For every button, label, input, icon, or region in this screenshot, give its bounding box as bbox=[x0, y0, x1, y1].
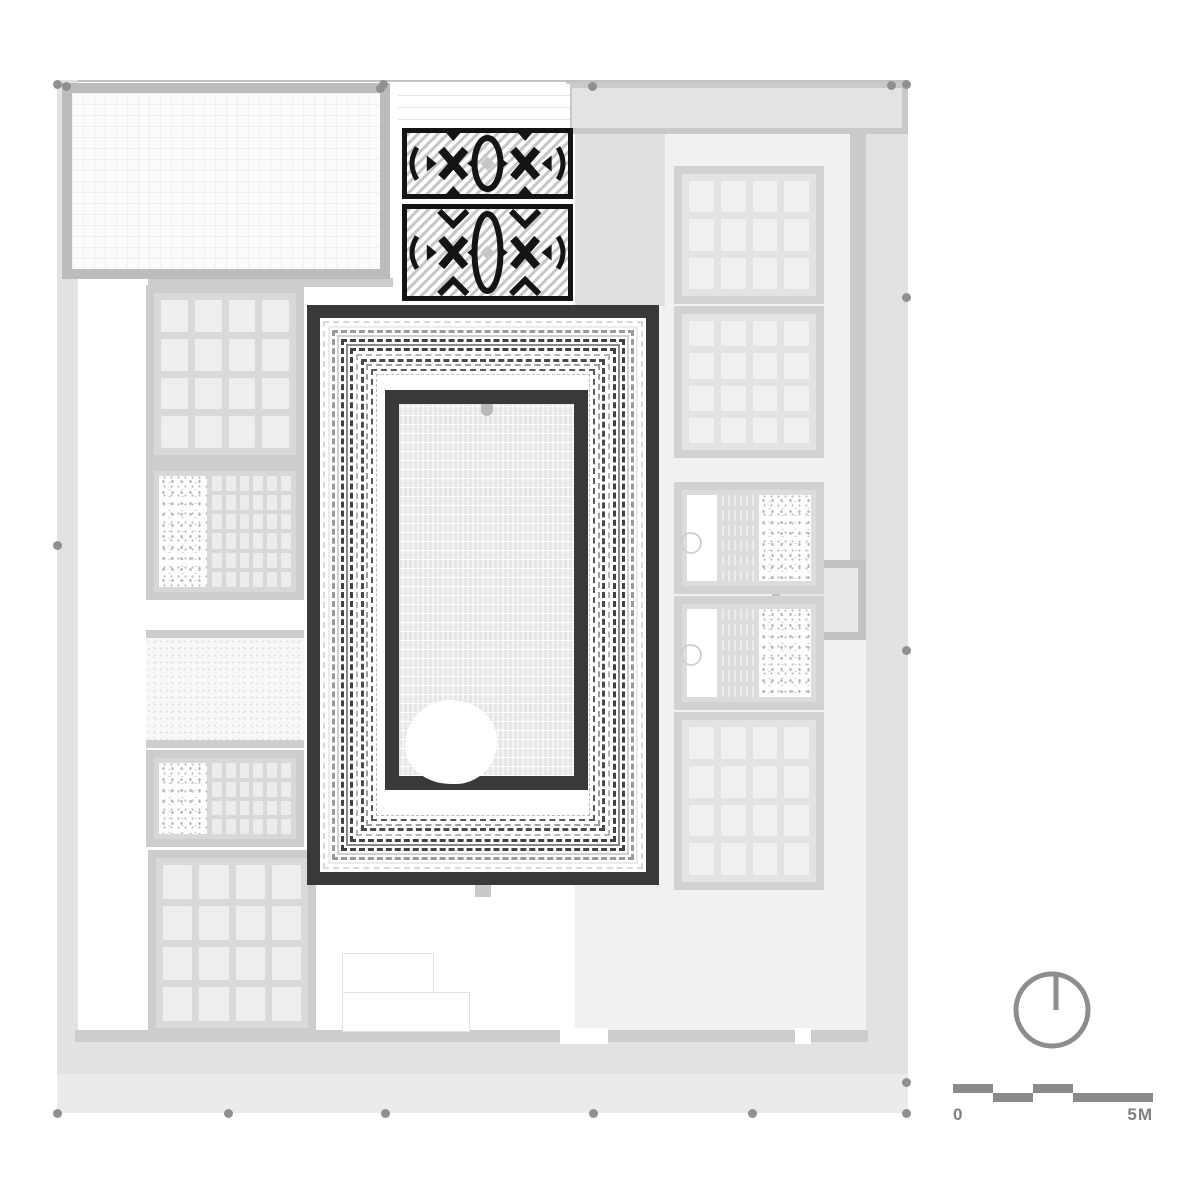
floor-tile bbox=[195, 378, 222, 410]
floor-tile bbox=[753, 219, 778, 250]
floor-tile bbox=[689, 258, 714, 289]
small-tile bbox=[734, 609, 736, 620]
small-tile bbox=[240, 476, 250, 491]
floor-tile bbox=[199, 865, 228, 899]
speckle-patch bbox=[759, 609, 811, 697]
floor-tile bbox=[753, 843, 778, 875]
central-pool bbox=[385, 390, 588, 790]
floor-tile bbox=[689, 766, 714, 798]
floor-tile bbox=[272, 987, 301, 1021]
floor-tile bbox=[753, 181, 778, 212]
small-tile bbox=[746, 640, 748, 651]
small-tile bbox=[728, 655, 730, 666]
small-tile bbox=[253, 495, 263, 510]
small-tile bbox=[226, 763, 236, 778]
column-dot bbox=[381, 1109, 390, 1118]
small-tile bbox=[212, 495, 222, 510]
small-tile bbox=[752, 609, 754, 620]
small-tile bbox=[267, 533, 277, 548]
floor-tile bbox=[229, 339, 256, 371]
column-dot bbox=[62, 82, 71, 91]
floor-tile bbox=[195, 300, 222, 332]
small-tile bbox=[281, 495, 291, 510]
floor-tile bbox=[229, 300, 256, 332]
small-tile bbox=[752, 640, 754, 651]
floor-tile bbox=[721, 843, 746, 875]
room-hammam-L2 bbox=[146, 463, 304, 600]
scale-end-label: 5M bbox=[1127, 1105, 1153, 1125]
floor-tile bbox=[721, 181, 746, 212]
room-tiles-L5 bbox=[148, 850, 316, 1036]
floor-tile bbox=[784, 805, 809, 837]
speckle-patch bbox=[159, 763, 207, 834]
floor-tile bbox=[721, 321, 746, 346]
column-dot bbox=[887, 81, 896, 90]
small-tile bbox=[752, 540, 754, 551]
small-tile bbox=[281, 782, 291, 797]
small-tile bbox=[240, 763, 250, 778]
scale-start-label: 0 bbox=[953, 1105, 963, 1125]
great-hall bbox=[62, 83, 390, 279]
small-tile bbox=[281, 763, 291, 778]
floor-tile bbox=[163, 987, 192, 1021]
small-tile bbox=[212, 572, 222, 587]
scale-bar-segment bbox=[993, 1093, 1033, 1102]
floor-tile bbox=[689, 219, 714, 250]
floor-tile bbox=[753, 418, 778, 443]
small-tile bbox=[734, 525, 736, 536]
small-tile bbox=[752, 555, 754, 566]
small-tile bbox=[752, 525, 754, 536]
floor-tile bbox=[236, 906, 265, 940]
small-tile bbox=[226, 801, 236, 816]
small-tile bbox=[746, 525, 748, 536]
small-tile bbox=[267, 763, 277, 778]
small-tile bbox=[267, 819, 277, 834]
small-tile bbox=[253, 801, 263, 816]
room-tiles-R2 bbox=[674, 306, 824, 458]
floor-tile bbox=[689, 727, 714, 759]
floor-tile bbox=[721, 386, 746, 411]
floor-tile bbox=[753, 386, 778, 411]
speckle-patch bbox=[159, 476, 207, 587]
floor-tile bbox=[161, 378, 188, 410]
floor-tile bbox=[161, 339, 188, 371]
floor-tile bbox=[689, 321, 714, 346]
column-dot bbox=[53, 1109, 62, 1118]
small-tile bbox=[226, 782, 236, 797]
small-tile bbox=[267, 572, 277, 587]
small-tile bbox=[240, 572, 250, 587]
floor-tile bbox=[753, 805, 778, 837]
small-tile-grid bbox=[722, 495, 754, 581]
column-dot bbox=[224, 1109, 233, 1118]
floor-tile bbox=[689, 353, 714, 378]
right-mid-band bbox=[575, 134, 665, 306]
floor-tile bbox=[236, 947, 265, 981]
floor-tile bbox=[163, 947, 192, 981]
pool-island-blob bbox=[405, 700, 497, 784]
floor-tile bbox=[753, 258, 778, 289]
floor-tile bbox=[262, 339, 289, 371]
north-entry-block bbox=[566, 82, 908, 134]
floor-tile bbox=[272, 865, 301, 899]
small-tile bbox=[740, 670, 742, 681]
east-terrace bbox=[866, 82, 908, 1113]
floor-tile bbox=[689, 181, 714, 212]
floor-tile bbox=[262, 378, 289, 410]
basin-circle bbox=[680, 532, 702, 554]
floor-tile bbox=[163, 865, 192, 899]
floor-tile bbox=[689, 386, 714, 411]
floor-tile bbox=[784, 727, 809, 759]
small-tile bbox=[722, 510, 724, 521]
floor-tile bbox=[272, 906, 301, 940]
floor-tile bbox=[721, 418, 746, 443]
small-tile bbox=[253, 782, 263, 797]
small-tile bbox=[752, 570, 754, 581]
small-tile bbox=[740, 525, 742, 536]
small-tile bbox=[740, 555, 742, 566]
small-tile bbox=[752, 510, 754, 521]
small-tile bbox=[281, 533, 291, 548]
room-sand-L3 bbox=[146, 630, 304, 748]
small-tile bbox=[728, 540, 730, 551]
small-tile bbox=[728, 640, 730, 651]
small-tile bbox=[722, 540, 724, 551]
small-tile bbox=[734, 640, 736, 651]
small-tile bbox=[212, 533, 222, 548]
small-tile bbox=[746, 655, 748, 666]
floor-tile bbox=[721, 258, 746, 289]
floor-tile bbox=[161, 300, 188, 332]
column-dot bbox=[589, 1109, 598, 1118]
small-tile bbox=[281, 553, 291, 568]
scale-bar-segment bbox=[1073, 1093, 1153, 1102]
floor-tile bbox=[784, 766, 809, 798]
room-tiles-R1 bbox=[674, 166, 824, 304]
small-tile bbox=[722, 609, 724, 620]
small-tile bbox=[240, 533, 250, 548]
small-tile bbox=[728, 510, 730, 521]
floor-tile bbox=[262, 300, 289, 332]
south-terrace-light bbox=[57, 1074, 908, 1113]
small-tile bbox=[728, 570, 730, 581]
floor-tile bbox=[229, 378, 256, 410]
floor-tile bbox=[753, 321, 778, 346]
entry-vestibule bbox=[398, 84, 570, 128]
small-tile bbox=[740, 540, 742, 551]
floor-tile bbox=[721, 805, 746, 837]
floor-tile bbox=[753, 353, 778, 378]
small-tile-grid bbox=[722, 609, 754, 697]
column-dot bbox=[902, 646, 911, 655]
small-tile bbox=[281, 819, 291, 834]
small-tile bbox=[722, 670, 724, 681]
room-hammam-L4 bbox=[146, 750, 304, 847]
small-tile bbox=[253, 763, 263, 778]
small-tile bbox=[722, 525, 724, 536]
axis-tab-south bbox=[475, 885, 491, 897]
kilim-pattern-svg bbox=[402, 128, 573, 199]
small-tile bbox=[253, 514, 263, 529]
floor-tile bbox=[784, 321, 809, 346]
scale-bar: 0 5M bbox=[953, 1084, 1153, 1124]
floor-tile bbox=[784, 353, 809, 378]
small-tile bbox=[728, 624, 730, 635]
small-tile bbox=[226, 476, 236, 491]
small-tile bbox=[746, 555, 748, 566]
north-arrow-icon bbox=[1006, 964, 1100, 1058]
floor-tile bbox=[236, 865, 265, 899]
kilim-panel-north bbox=[402, 128, 573, 199]
small-tile bbox=[212, 514, 222, 529]
small-tile bbox=[722, 655, 724, 666]
roof-plan-canvas: 0 5M bbox=[0, 0, 1200, 1200]
small-tile bbox=[734, 495, 736, 506]
small-tile bbox=[722, 640, 724, 651]
small-tile bbox=[734, 555, 736, 566]
small-tile bbox=[267, 495, 277, 510]
small-tile-grid bbox=[212, 763, 291, 834]
column-dot bbox=[902, 1109, 911, 1118]
small-tile bbox=[281, 476, 291, 491]
column-dot bbox=[53, 80, 62, 89]
small-tile bbox=[226, 572, 236, 587]
small-tile bbox=[740, 609, 742, 620]
speckle-patch bbox=[759, 495, 811, 581]
small-tile bbox=[253, 553, 263, 568]
small-tile bbox=[740, 570, 742, 581]
small-tile bbox=[253, 476, 263, 491]
basin-circle bbox=[680, 644, 702, 666]
floor-tile bbox=[229, 416, 256, 448]
floor-tile bbox=[236, 987, 265, 1021]
floor-tile bbox=[721, 219, 746, 250]
small-tile bbox=[253, 572, 263, 587]
small-tile bbox=[267, 476, 277, 491]
small-tile bbox=[267, 801, 277, 816]
floor-tile bbox=[689, 418, 714, 443]
small-tile bbox=[728, 686, 730, 697]
small-tile bbox=[240, 801, 250, 816]
small-tile bbox=[240, 514, 250, 529]
floor-tile bbox=[272, 947, 301, 981]
floor-tile bbox=[721, 766, 746, 798]
small-tile bbox=[226, 514, 236, 529]
small-tile bbox=[212, 476, 222, 491]
small-tile bbox=[281, 572, 291, 587]
floor-tile bbox=[199, 987, 228, 1021]
floor-tile bbox=[784, 181, 809, 212]
small-tile bbox=[226, 495, 236, 510]
floor-tile bbox=[784, 219, 809, 250]
floor-tile bbox=[784, 386, 809, 411]
small-tile bbox=[212, 763, 222, 778]
small-tile bbox=[752, 686, 754, 697]
floor-tile bbox=[753, 727, 778, 759]
small-tile bbox=[740, 495, 742, 506]
small-tile bbox=[212, 782, 222, 797]
room-tiles-L1 bbox=[146, 285, 304, 463]
small-tile bbox=[267, 782, 277, 797]
small-tile-grid bbox=[212, 476, 291, 587]
small-tile bbox=[752, 670, 754, 681]
small-tile bbox=[728, 525, 730, 536]
small-tile bbox=[728, 609, 730, 620]
small-tile bbox=[212, 553, 222, 568]
column-dot bbox=[588, 82, 597, 91]
floor-tile bbox=[784, 258, 809, 289]
floor-tile bbox=[784, 418, 809, 443]
kilim-pattern-svg bbox=[402, 204, 573, 301]
column-dot bbox=[53, 541, 62, 550]
small-tile bbox=[728, 555, 730, 566]
small-tile bbox=[267, 553, 277, 568]
small-tile bbox=[226, 819, 236, 834]
small-tile bbox=[746, 609, 748, 620]
kilim-panel-south bbox=[402, 204, 573, 301]
floor-tile bbox=[161, 416, 188, 448]
small-tile bbox=[281, 514, 291, 529]
floor-tile bbox=[753, 766, 778, 798]
small-tile bbox=[728, 670, 730, 681]
floor-tile bbox=[195, 339, 222, 371]
small-tile bbox=[746, 510, 748, 521]
small-tile bbox=[240, 553, 250, 568]
small-tile bbox=[740, 640, 742, 651]
small-tile bbox=[734, 510, 736, 521]
small-tile bbox=[722, 624, 724, 635]
column-dot bbox=[748, 1109, 757, 1118]
small-tile bbox=[240, 782, 250, 797]
stair-flight bbox=[342, 992, 470, 1032]
small-tile bbox=[734, 540, 736, 551]
floor-tile bbox=[721, 353, 746, 378]
floor-tile bbox=[689, 805, 714, 837]
small-tile bbox=[734, 655, 736, 666]
small-tile bbox=[722, 570, 724, 581]
small-tile bbox=[722, 686, 724, 697]
small-tile bbox=[752, 655, 754, 666]
small-tile bbox=[253, 533, 263, 548]
small-tile bbox=[240, 495, 250, 510]
south-door-gap-2 bbox=[795, 1028, 811, 1044]
small-tile bbox=[226, 533, 236, 548]
small-tile bbox=[740, 686, 742, 697]
small-tile bbox=[212, 819, 222, 834]
small-tile bbox=[267, 514, 277, 529]
small-tile bbox=[746, 495, 748, 506]
column-dot bbox=[902, 80, 911, 89]
floor-tile bbox=[163, 906, 192, 940]
courtyard-monument bbox=[307, 305, 659, 885]
small-tile bbox=[240, 819, 250, 834]
floor-tile bbox=[689, 843, 714, 875]
small-tile bbox=[253, 819, 263, 834]
south-door-gap bbox=[560, 1028, 608, 1044]
small-tile bbox=[212, 801, 222, 816]
column-dot bbox=[376, 84, 385, 93]
column-dot bbox=[902, 293, 911, 302]
floor-tile bbox=[199, 906, 228, 940]
small-tile bbox=[740, 510, 742, 521]
floor-tile bbox=[784, 843, 809, 875]
small-tile bbox=[746, 624, 748, 635]
small-tile bbox=[734, 570, 736, 581]
small-tile bbox=[722, 555, 724, 566]
small-tile bbox=[728, 495, 730, 506]
small-tile bbox=[226, 553, 236, 568]
small-tile bbox=[746, 670, 748, 681]
small-tile bbox=[740, 624, 742, 635]
small-tile bbox=[722, 495, 724, 506]
east-wall bbox=[850, 134, 866, 568]
column-dot bbox=[902, 1078, 911, 1087]
small-tile bbox=[734, 686, 736, 697]
floor-tile bbox=[721, 727, 746, 759]
small-tile bbox=[740, 655, 742, 666]
small-tile bbox=[734, 624, 736, 635]
room-tiles-R5 bbox=[674, 712, 824, 890]
small-tile bbox=[752, 624, 754, 635]
small-tile bbox=[734, 670, 736, 681]
small-tile bbox=[281, 801, 291, 816]
floor-tile bbox=[195, 416, 222, 448]
floor-tile bbox=[199, 947, 228, 981]
small-tile bbox=[746, 570, 748, 581]
scale-bar-segment bbox=[1033, 1084, 1073, 1093]
pool-axis-dot bbox=[481, 404, 493, 416]
floor-tile bbox=[262, 416, 289, 448]
small-tile bbox=[746, 686, 748, 697]
small-tile bbox=[746, 540, 748, 551]
scale-bar-segment bbox=[953, 1084, 993, 1093]
small-tile bbox=[752, 495, 754, 506]
